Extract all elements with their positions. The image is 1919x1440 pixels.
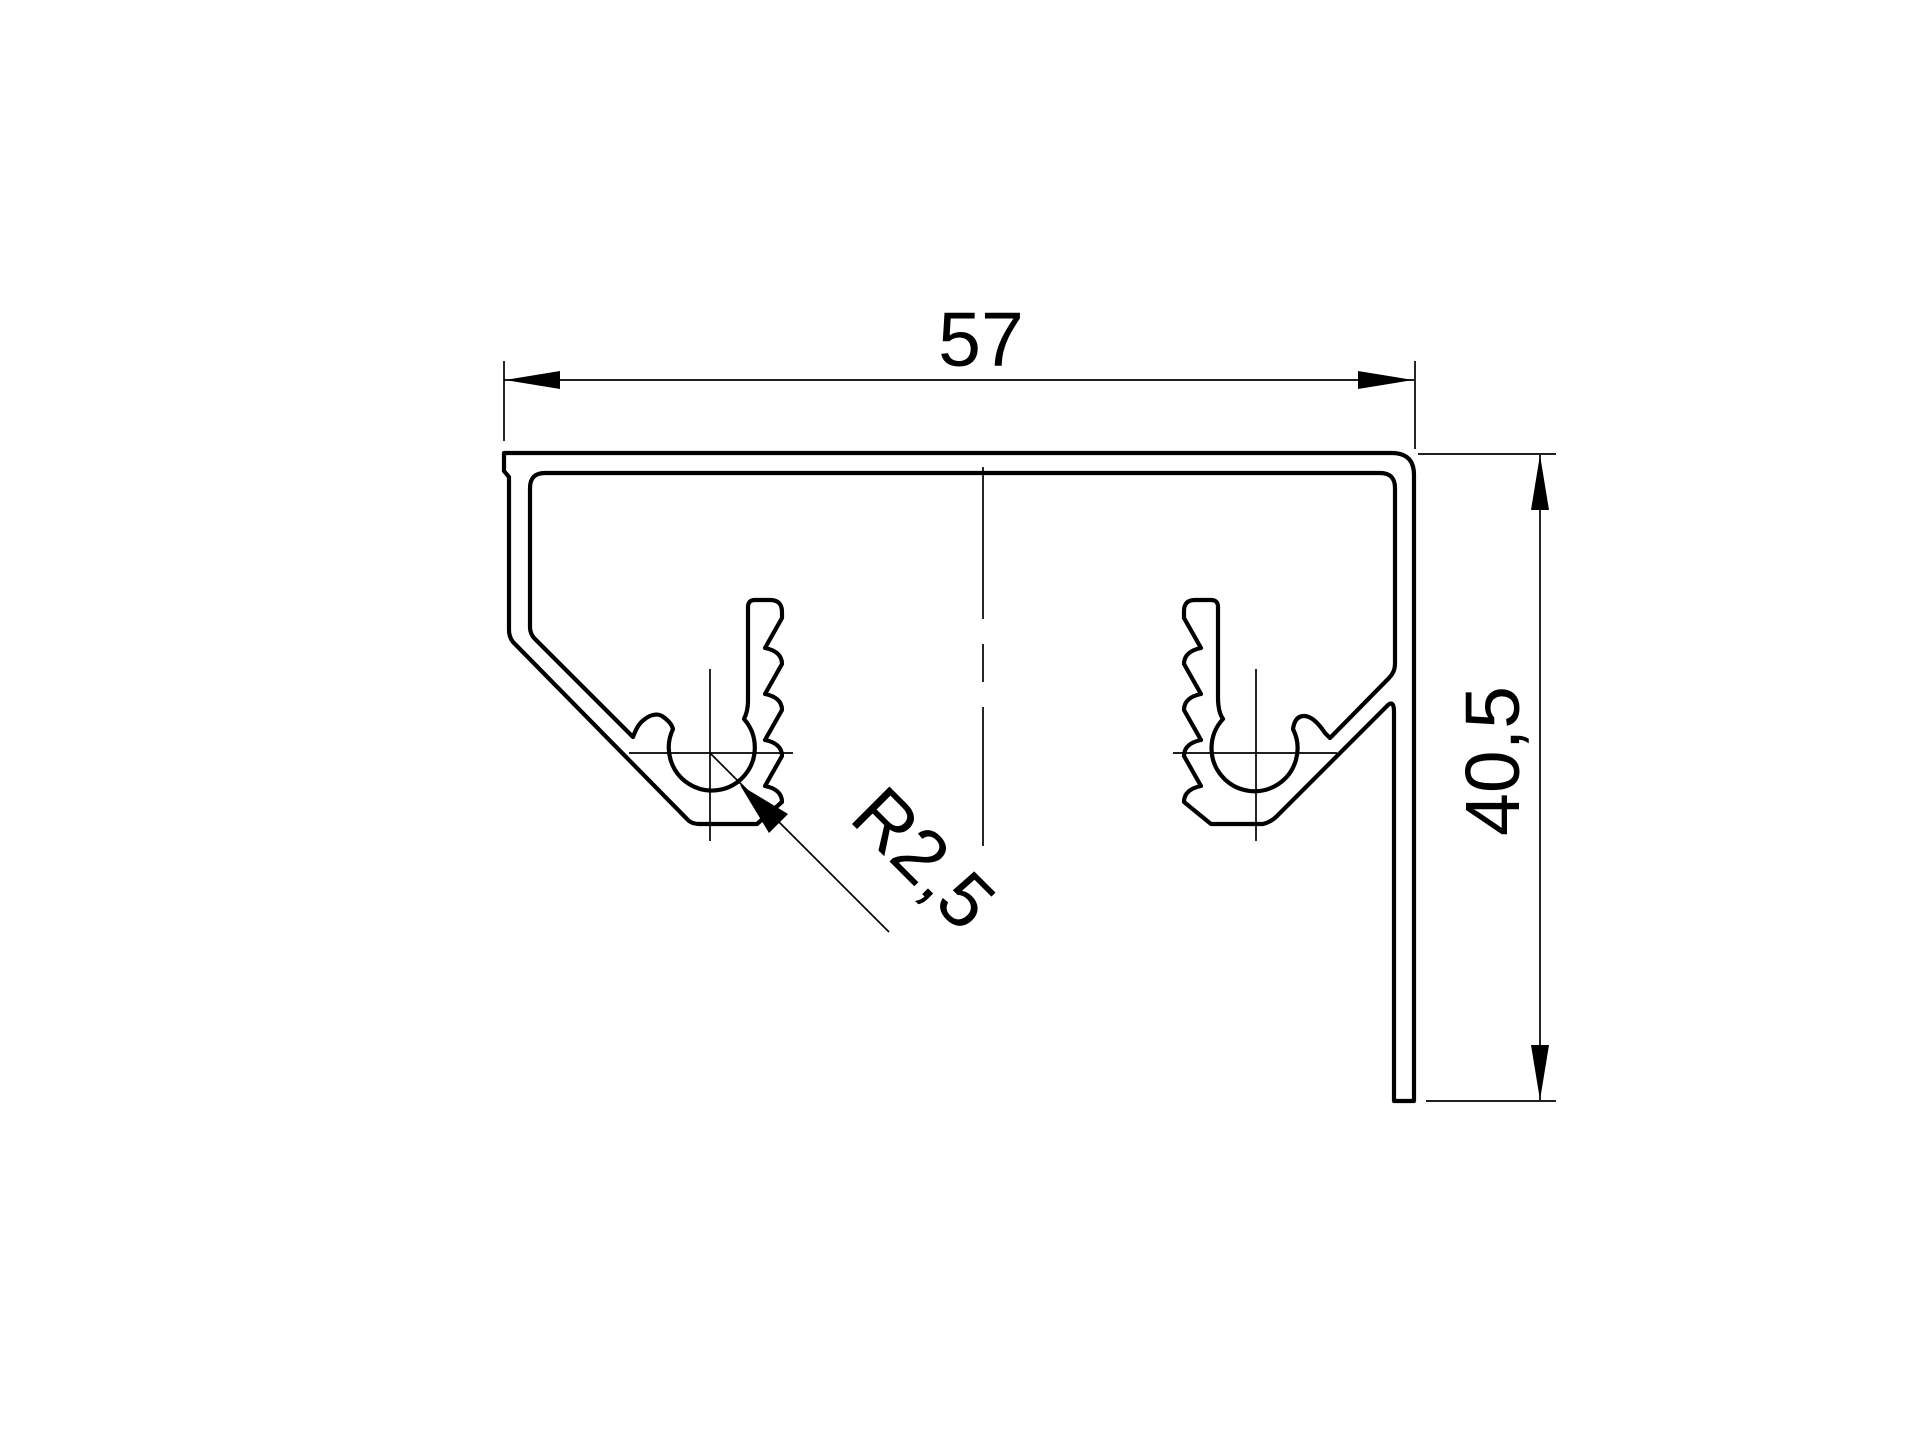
- dimension-width: 57: [504, 297, 1415, 449]
- centerlines: [629, 467, 1337, 846]
- width-arrowhead-left: [505, 371, 560, 389]
- radius-callout: R2,5: [710, 753, 1011, 947]
- height-arrowhead-top: [1531, 455, 1549, 510]
- height-arrowhead-bottom: [1531, 1045, 1549, 1100]
- dimension-height-label: 40,5: [1450, 686, 1536, 836]
- dimension-width-label: 57: [938, 297, 1024, 383]
- profile-outline: [504, 453, 1414, 1101]
- profile-technical-drawing: 57 40,5 R2,5: [0, 0, 1919, 1440]
- radius-label: R2,5: [835, 771, 1011, 947]
- drawing-page: 57 40,5 R2,5: [0, 0, 1919, 1440]
- dimension-height: 40,5: [1418, 454, 1556, 1101]
- width-arrowhead-right: [1358, 371, 1413, 389]
- profile-contour: [504, 453, 1414, 1101]
